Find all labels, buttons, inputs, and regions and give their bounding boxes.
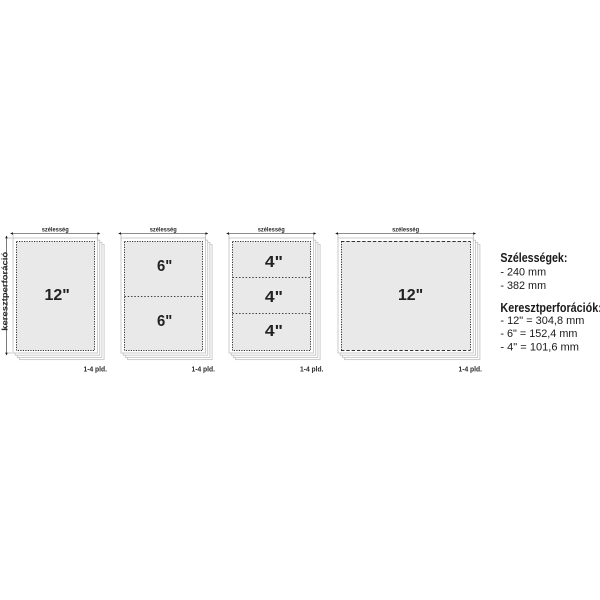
svg-text:- 240 mm: - 240 mm — [500, 267, 546, 279]
svg-text:1-4 pld.: 1-4 pld. — [192, 367, 216, 374]
svg-text:4": 4" — [265, 254, 283, 271]
svg-text:6": 6" — [157, 313, 172, 330]
svg-text:szélesség: szélesség — [392, 227, 419, 234]
svg-text:4": 4" — [265, 289, 283, 306]
svg-text:4": 4" — [265, 323, 283, 340]
svg-text:szélesség: szélesség — [258, 227, 285, 234]
svg-text:12": 12" — [398, 287, 423, 304]
svg-text:1-4 pld.: 1-4 pld. — [459, 367, 483, 374]
svg-text:1-4 pld.: 1-4 pld. — [84, 367, 108, 374]
svg-text:12": 12" — [45, 287, 70, 304]
svg-text:keresztperforáció: keresztperforáció — [0, 252, 10, 331]
svg-text:- 6" = 152,4 mm: - 6" = 152,4 mm — [500, 328, 577, 340]
svg-text:1-4 pld.: 1-4 pld. — [300, 367, 324, 374]
svg-text:- 382 mm: - 382 mm — [500, 280, 546, 292]
svg-text:- 4" = 101,6 mm: - 4" = 101,6 mm — [500, 341, 579, 353]
svg-text:Keresztperforációk:: Keresztperforációk: — [500, 300, 600, 315]
svg-text:szélesség: szélesség — [150, 227, 177, 234]
svg-text:- 12" = 304,8 mm: - 12" = 304,8 mm — [500, 315, 584, 327]
svg-text:6": 6" — [157, 258, 172, 275]
svg-text:Szélességek:: Szélességek: — [500, 250, 567, 265]
svg-text:szélesség: szélesség — [42, 227, 69, 234]
